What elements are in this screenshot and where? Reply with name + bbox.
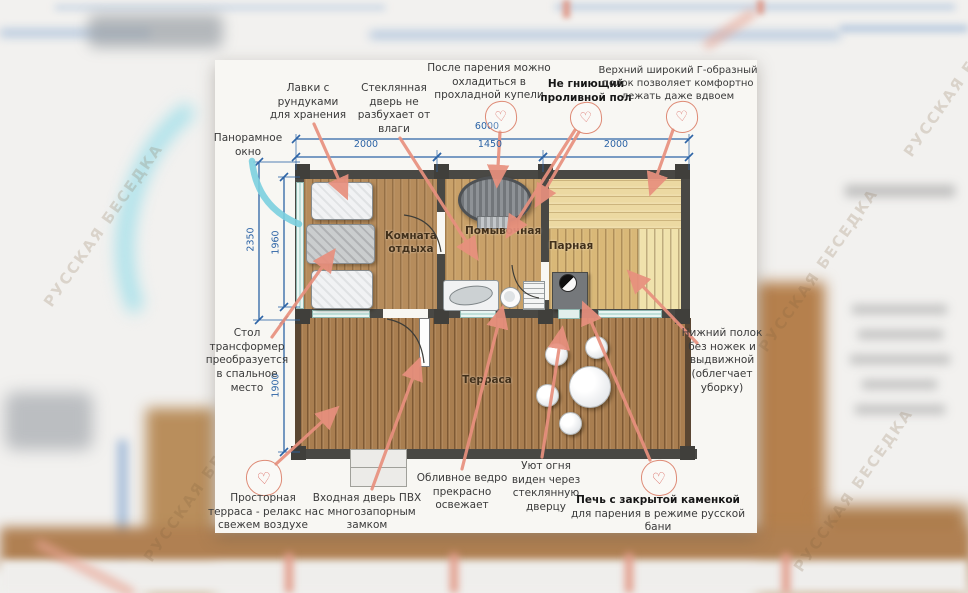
panoramic-window <box>296 182 304 309</box>
bg-blur-shape <box>370 32 840 38</box>
room-label-steam: Парная <box>545 240 597 253</box>
dousing-bucket-inner <box>504 291 515 302</box>
bed <box>311 182 373 220</box>
bg-blur-shape <box>0 30 150 36</box>
heart-icon: ♡ <box>494 108 508 125</box>
heart-icon: ♡ <box>579 109 593 126</box>
bg-blur-shape <box>55 6 385 9</box>
wall-post <box>675 164 690 179</box>
terrace-stool <box>559 412 582 435</box>
bg-blur-shape <box>862 380 937 389</box>
watermark-text: РУССКАЯ БЕСЕДКА <box>755 185 882 355</box>
annotation-text-part: для парения в режиме русской бани <box>571 508 745 534</box>
watermark-text: РУССКАЯ БЕСЕДКА <box>900 0 968 160</box>
annotation-benches: Лавки с рундуками для хранения <box>260 82 356 123</box>
dimension-label-left_inner: 1960 <box>271 223 282 263</box>
bg-blur-shape <box>555 5 955 9</box>
entrance-door-leaf <box>419 318 430 367</box>
bg-blur-shape <box>35 540 135 593</box>
terrace-stool <box>585 336 608 359</box>
screenshot-root: РУССКАЯ БЕСЕДКАРУССКАЯ БЕСЕДКАРУССКАЯ БЕ… <box>0 0 968 593</box>
wall-post <box>538 164 553 179</box>
entrance-steps <box>350 467 407 487</box>
bg-blur-shape <box>285 553 293 593</box>
bed <box>311 270 373 309</box>
terrace-stool <box>536 384 559 407</box>
bg-blur-shape <box>450 553 458 593</box>
dimension-label-seg1: 2000 <box>346 139 386 150</box>
dimension-label-seg3: 2000 <box>596 139 636 150</box>
stove-glass-door <box>558 309 580 319</box>
watermark-text: РУССКАЯ БЕСЕДКА <box>40 140 167 310</box>
heart-icon: ♡ <box>256 468 272 488</box>
heart-icon: ♡ <box>651 468 667 488</box>
annotation-text-part: Печь с закрытой каменкой <box>576 494 740 506</box>
entrance-steps <box>350 449 407 469</box>
bg-blur-shape <box>858 330 943 339</box>
wall-post <box>434 309 449 324</box>
bg-blur-shape <box>88 14 223 48</box>
annotation-lower-shelf: Нижний полок без ножек и выдвижной (обле… <box>676 327 768 395</box>
terrace-stool <box>545 343 568 366</box>
stove-firebox-icon <box>559 274 577 292</box>
annotation-bucket: Обливное ведро прекрасно освежает <box>410 472 514 513</box>
bg-blur-shape <box>118 440 127 565</box>
wall-post <box>680 446 695 460</box>
wall-post <box>291 446 306 460</box>
steam-upper-shelf <box>549 179 681 229</box>
annotation-panoramic-window: Панорамное окно <box>206 132 290 159</box>
bg-blur-shape <box>782 553 790 593</box>
wall-post <box>675 309 690 324</box>
shower-tray <box>523 281 545 310</box>
window <box>460 310 496 318</box>
bg-blur-shape <box>563 0 570 18</box>
annotation-transformer-table: Стол трансформер преобразуется в спально… <box>201 327 293 395</box>
bg-blur-shape <box>840 26 968 31</box>
watermark-text: РУССКАЯ БЕСЕДКА <box>790 405 917 575</box>
room-label-terrace: Терраса <box>459 374 515 387</box>
window <box>312 310 370 318</box>
wall-partition <box>437 179 445 212</box>
bg-blur-shape <box>757 0 764 14</box>
bg-blur-shape <box>704 9 757 48</box>
room-label-rest: Комната отдыха <box>380 230 442 255</box>
bg-blur-shape <box>850 355 950 364</box>
table-bed <box>306 224 375 264</box>
wall <box>681 170 690 318</box>
annotation-stove-note: Печь с закрытой каменкой для парения в р… <box>568 494 748 535</box>
terrace-table <box>569 366 611 408</box>
heart-icon: ♡ <box>675 108 689 125</box>
steam-lower-shelf <box>638 229 681 309</box>
bg-blur-shape <box>5 392 93 450</box>
annotation-upper-shelf: Верхний широкий Г-образный полок позволя… <box>598 64 758 103</box>
wall-post <box>295 309 310 324</box>
bg-blur-shape <box>852 305 947 314</box>
room-label-wash: Помывочная <box>465 225 539 238</box>
dimension-label-seg2: 1450 <box>470 139 510 150</box>
terrace-edge <box>295 318 301 449</box>
bg-blur-shape <box>0 560 968 593</box>
entrance-opening <box>383 309 428 318</box>
wall-post <box>538 309 553 324</box>
window <box>598 310 662 318</box>
wall-post <box>434 164 449 179</box>
dimension-label-left_outer: 2350 <box>246 220 257 260</box>
wall-post <box>295 164 310 179</box>
bg-blur-shape <box>625 553 633 593</box>
